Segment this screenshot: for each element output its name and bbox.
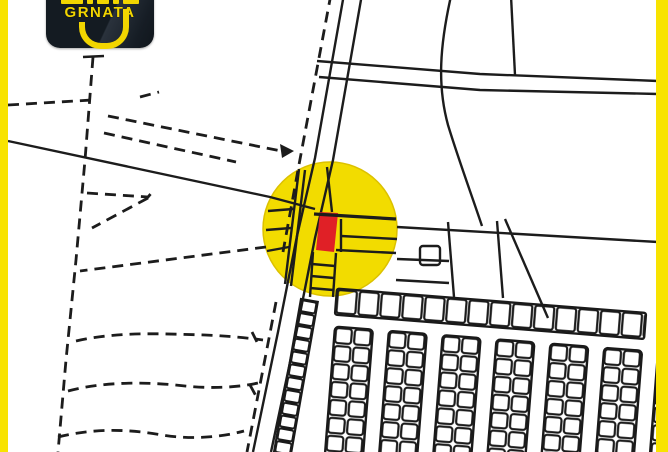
plot-location-map: GRNATA (0, 0, 668, 452)
left-frame-bar (0, 0, 8, 452)
logo-brand-text: GRNATA (46, 5, 154, 20)
map-canvas (0, 0, 668, 452)
smile-icon (79, 22, 129, 49)
survey-tick (83, 56, 104, 57)
grnata-logo: GRNATA (46, 0, 154, 48)
right-frame-bar (656, 0, 668, 452)
